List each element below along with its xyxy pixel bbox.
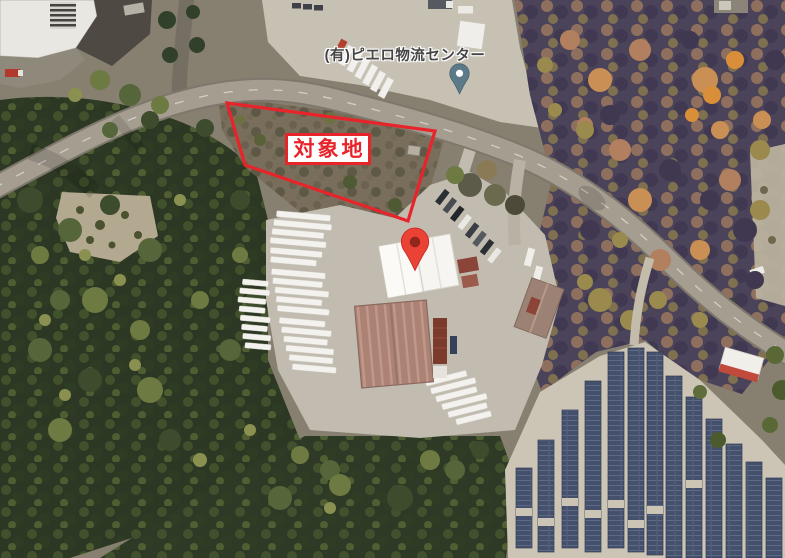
poi-label[interactable]: (有)ピエロ物流センター xyxy=(318,44,492,65)
destination-marker-icon[interactable] xyxy=(400,227,430,272)
place-pin-icon[interactable] xyxy=(449,63,470,95)
site-label-box: 対象地 xyxy=(285,133,371,165)
structure-topright xyxy=(714,0,748,13)
map-viewport[interactable]: (有)ピエロ物流センター 対象地 xyxy=(0,0,785,558)
rust-roof-warehouse xyxy=(355,300,434,388)
destination-marker-dot xyxy=(410,237,421,248)
satellite-imagery xyxy=(0,0,785,558)
access-road-top xyxy=(179,0,187,92)
place-pin-dot xyxy=(456,70,463,77)
